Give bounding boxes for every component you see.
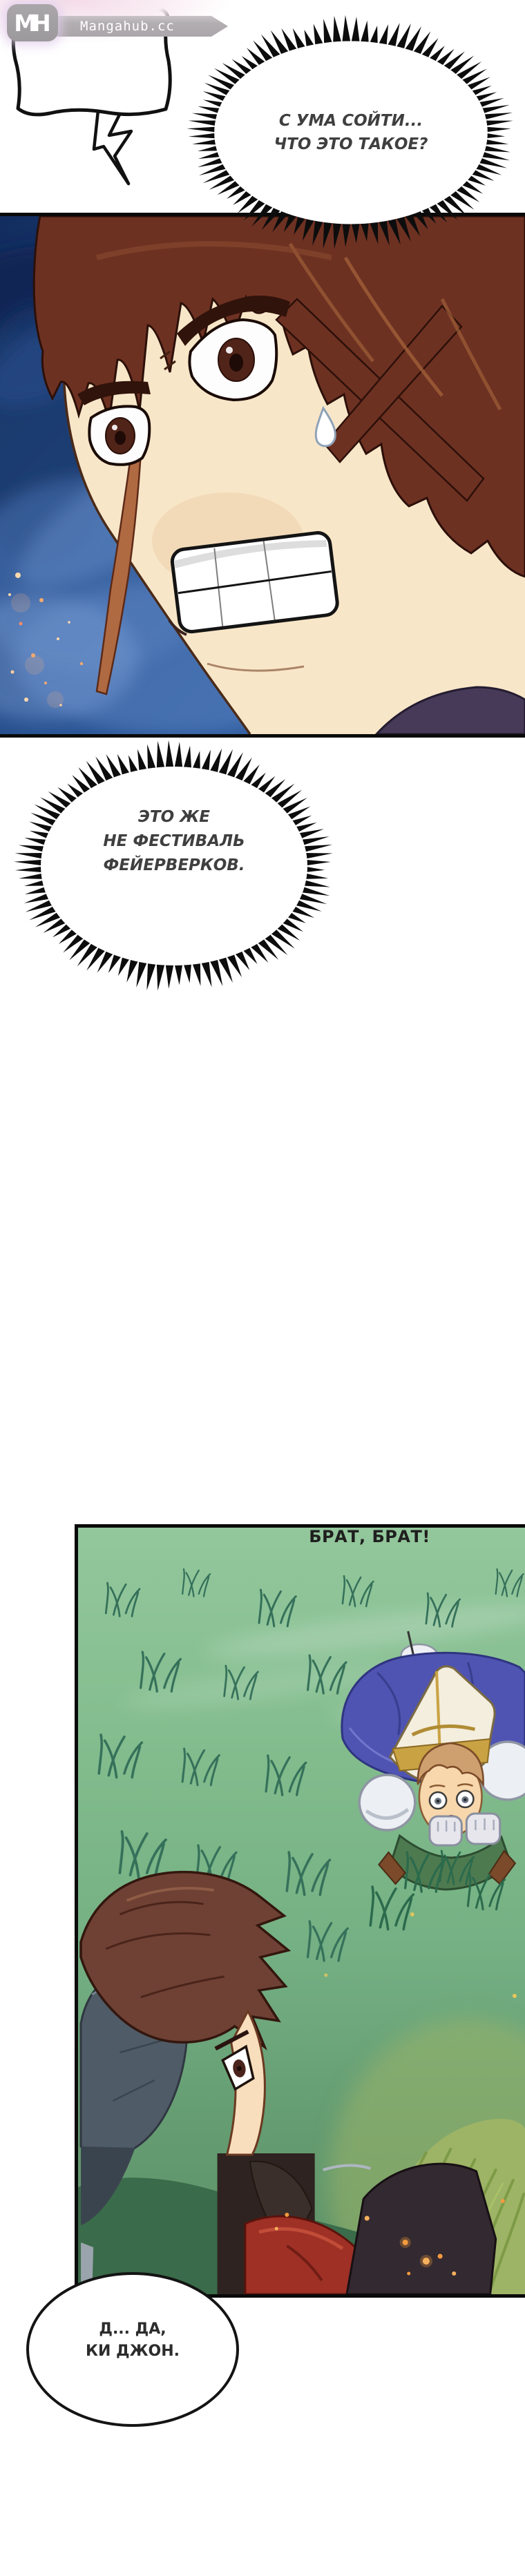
knight-left-gauntlet <box>430 1816 461 1845</box>
speech-bubble-reply-text: Д... ДА, КИ ДЖОН. <box>86 2318 180 2363</box>
speech-bubble-fireworks-text: ЭТО ЖЕ НЕ ФЕСТИВАЛЬ ФЕЙЕРВЕРКОВ. <box>35 744 314 938</box>
panel-grass-field <box>75 1524 525 2298</box>
site-name-ribbon[interactable]: Mangahub.cc <box>43 16 228 37</box>
site-logo-text: MH <box>14 10 46 37</box>
bubble-lightning-tail <box>94 110 131 184</box>
speech-bubble-reply: Д... ДА, КИ ДЖОН. <box>26 2272 239 2427</box>
panel-night-face <box>0 213 525 738</box>
knight-left-pauldron <box>359 1775 415 1830</box>
speech-bubble-call-text: БРАТ, БРАТ! <box>294 1516 446 1557</box>
site-logo[interactable]: MH <box>7 4 58 41</box>
manga-reader-page: Mangahub.cc MH С УМА СОЙТИ... ЧТО ЭТО ТА… <box>0 0 525 2576</box>
panel-2-art <box>78 1528 525 2294</box>
speech-bubble-scream-text: С УМА СОЙТИ... ЧТО ЭТО ТАКОЕ? <box>208 36 494 229</box>
panel-1-art <box>0 216 525 734</box>
site-name: Mangahub.cc <box>80 19 175 34</box>
knight-right-gauntlet <box>466 1814 499 1844</box>
gritted-teeth <box>171 532 338 633</box>
